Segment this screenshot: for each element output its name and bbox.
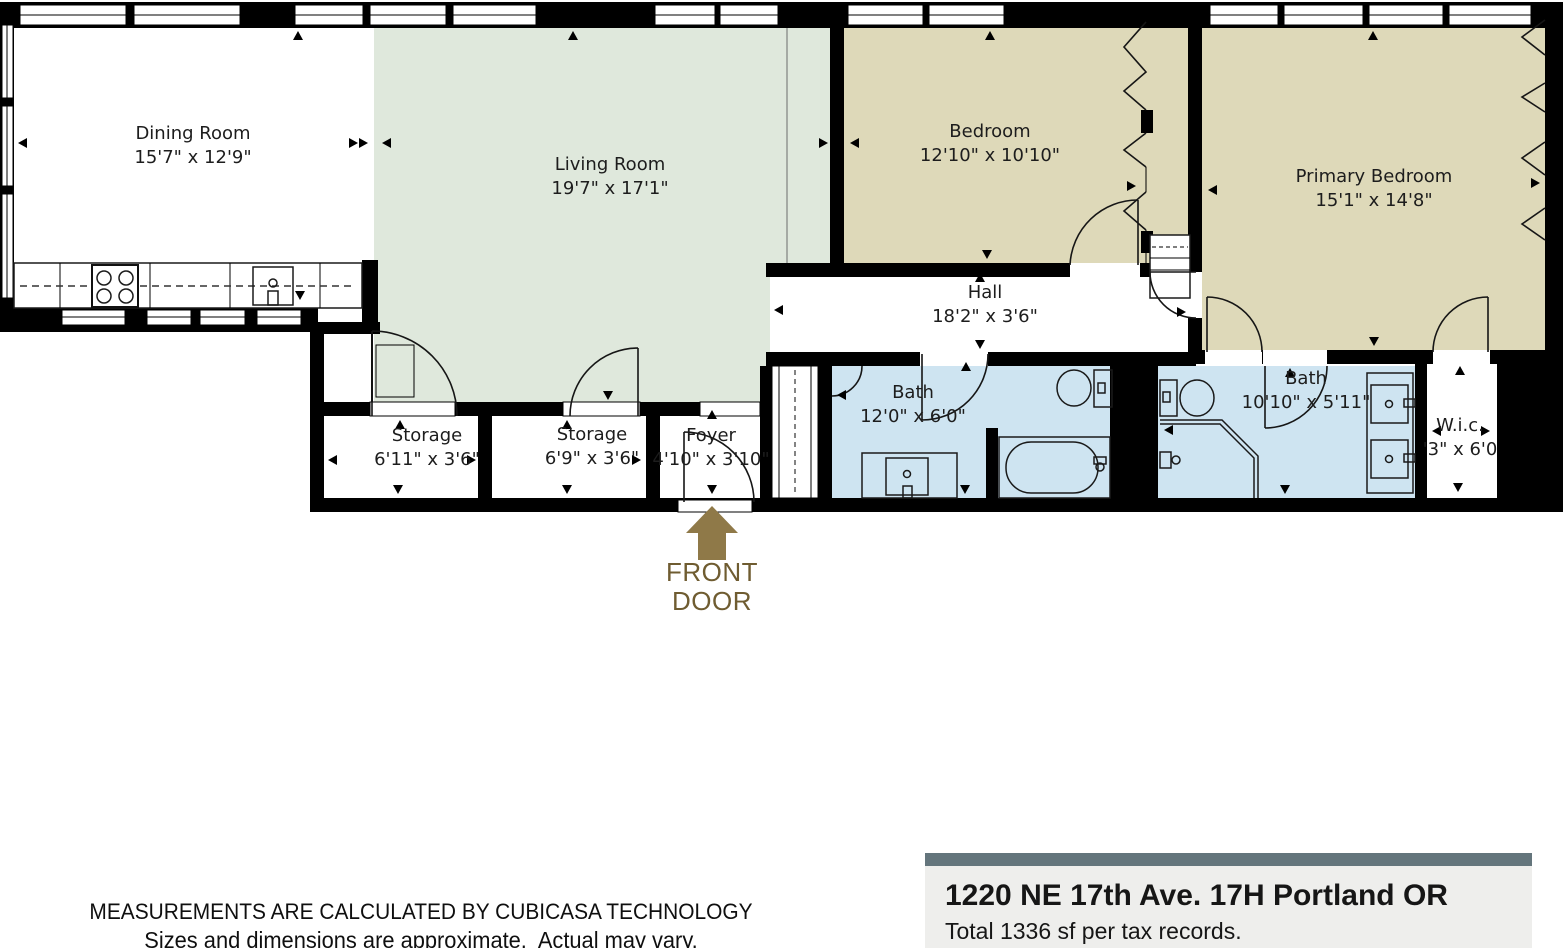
dimension-arrow-icon xyxy=(1453,483,1463,492)
stove-icon xyxy=(92,265,138,307)
room-name: Living Room xyxy=(551,153,668,177)
room-label-dining-room: Dining Room 15'7" x 12'9" xyxy=(134,122,251,170)
room-label-storage-1: Storage 6'11" x 3'6" xyxy=(374,424,480,472)
address-box-bar xyxy=(925,853,1532,866)
room-dims: 19'7" x 17'1" xyxy=(551,177,668,201)
room-name: Primary Bedroom xyxy=(1296,165,1453,189)
room-name: Hall xyxy=(932,281,1038,305)
room-name: Bath xyxy=(860,381,966,405)
address-box: 1220 NE 17th Ave. 17H Portland OR Total … xyxy=(925,853,1532,948)
room-label-living-room: Living Room 19'7" x 17'1" xyxy=(551,153,668,201)
dimension-arrow-icon xyxy=(774,305,783,315)
living-room-floor xyxy=(374,28,830,263)
dimension-arrow-icon xyxy=(359,138,368,148)
room-dims: 15'7" x 12'9" xyxy=(134,146,251,170)
total-area-text: Total 1336 sf per tax records. xyxy=(945,918,1532,945)
room-label-storage-2: Storage 6'9" x 3'6" xyxy=(545,423,639,471)
floor-plan-page: Dining Room 15'7" x 12'9" Living Room 19… xyxy=(0,0,1563,948)
room-label-foyer: Foyer 4'10" x 3'10" xyxy=(652,424,769,472)
room-name: Dining Room xyxy=(134,122,251,146)
front-door-label: FRONT DOOR xyxy=(652,558,772,615)
property-address: 1220 NE 17th Ave. 17H Portland OR xyxy=(945,879,1532,913)
room-dims: 18'2" x 3'6" xyxy=(932,305,1038,329)
room-dims: 6'9" x 3'6" xyxy=(545,447,639,471)
kitchen-counter xyxy=(14,263,362,308)
room-name: Storage xyxy=(374,424,480,448)
room-name: Bedroom xyxy=(920,120,1060,144)
room-label-primary-bedroom: Primary Bedroom 15'1" x 14'8" xyxy=(1296,165,1453,213)
dimension-arrow-icon xyxy=(293,31,303,40)
room-label-hall: Hall 18'2" x 3'6" xyxy=(932,281,1038,329)
room-dims: 10'10" x 5'11" xyxy=(1242,391,1371,415)
dimension-arrow-icon xyxy=(707,485,717,494)
dimension-arrow-icon xyxy=(328,455,337,465)
foyer-closet xyxy=(772,366,818,498)
dimension-arrow-icon xyxy=(393,485,403,494)
room-label-bath-2: Bath 10'10" x 5'11" xyxy=(1242,367,1371,415)
dimension-arrow-icon xyxy=(1455,366,1465,375)
room-dims: 4'10" x 3'10" xyxy=(652,448,769,472)
room-dims: '3" x 6'0 xyxy=(1423,438,1498,462)
floor-plan-drawing xyxy=(0,0,1563,620)
room-dims: 12'10" x 10'10" xyxy=(920,144,1060,168)
room-label-bath-1: Bath 12'0" x 6'0" xyxy=(860,381,966,429)
disclaimer-line-2: Sizes and dimensions are approximate. Ac… xyxy=(144,927,697,948)
room-name: Foyer xyxy=(652,424,769,448)
room-dims: 6'11" x 3'6" xyxy=(374,448,480,472)
room-name: Bath xyxy=(1242,367,1371,391)
room-dims: 12'0" x 6'0" xyxy=(860,405,966,429)
dimension-arrow-icon xyxy=(975,340,985,349)
room-name: Storage xyxy=(545,423,639,447)
room-dims: 15'1" x 14'8" xyxy=(1296,189,1453,213)
dimension-arrow-icon xyxy=(562,485,572,494)
dimension-arrow-icon xyxy=(18,138,27,148)
dimension-arrow-icon xyxy=(349,138,358,148)
washer-dryer-icon xyxy=(1150,235,1190,298)
room-label-wic: W.i.c. '3" x 6'0 xyxy=(1423,414,1498,462)
room-label-bedroom: Bedroom 12'10" x 10'10" xyxy=(920,120,1060,168)
front-door-arrow-icon xyxy=(686,506,738,560)
living-room-floor-lower xyxy=(374,263,770,403)
room-name: W.i.c. xyxy=(1423,414,1498,438)
disclaimer-line-1: MEASUREMENTS ARE CALCULATED BY CUBICASA … xyxy=(89,899,752,925)
